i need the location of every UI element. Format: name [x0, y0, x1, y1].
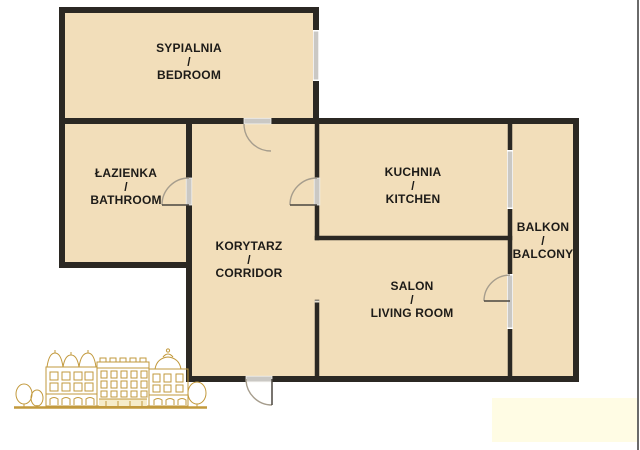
- room-label-balcony: BALKON / BALCONY: [513, 221, 574, 262]
- kitchen-balcony-window: [507, 150, 513, 209]
- watermark-block: [492, 398, 638, 442]
- room-label-bathroom: ŁAZIENKA / BATHROOM: [90, 167, 161, 208]
- building-windows: [101, 371, 147, 397]
- room-name-separator: /: [385, 179, 442, 193]
- room-name-en: LIVING ROOM: [371, 307, 454, 321]
- room-name-en: BALCONY: [513, 248, 574, 262]
- room-name-en: CORRIDOR: [216, 267, 283, 281]
- room-name-pl: KUCHNIA: [385, 166, 442, 180]
- room-name-pl: BALKON: [513, 221, 574, 235]
- room-name-separator: /: [371, 293, 454, 307]
- building-illustration-icon: [14, 349, 207, 408]
- room-name-separator: /: [156, 55, 222, 69]
- room-name-separator: /: [513, 234, 574, 248]
- room-name-en: BEDROOM: [156, 69, 222, 83]
- room-label-kitchen: KUCHNIA / KITCHEN: [385, 166, 442, 207]
- room-name-pl: SALON: [371, 280, 454, 294]
- room-label-corridor: KORYTARZ / CORRIDOR: [216, 240, 283, 281]
- room-name-pl: KORYTARZ: [216, 240, 283, 254]
- room-name-en: KITCHEN: [385, 193, 442, 207]
- room-name-pl: SYPIALNIA: [156, 42, 222, 56]
- room-name-separator: /: [216, 253, 283, 267]
- room-name-separator: /: [90, 180, 161, 194]
- tree-icon: [31, 390, 43, 406]
- entrance-door-arc: [246, 379, 272, 405]
- room-label-living-room: SALON / LIVING ROOM: [371, 280, 454, 321]
- bedroom-window: [313, 30, 319, 81]
- tree-icon: [188, 382, 206, 404]
- room-name-pl: ŁAZIENKA: [90, 167, 161, 181]
- room-name-en: BATHROOM: [90, 194, 161, 208]
- room-label-bedroom: SYPIALNIA / BEDROOM: [156, 42, 222, 83]
- passage-end-cap: [315, 301, 320, 303]
- entrance-door: [246, 376, 272, 405]
- building-windows: [50, 372, 93, 391]
- tree-icon: [16, 384, 32, 404]
- image-right-border: [637, 0, 639, 450]
- floor-plan-page: SYPIALNIA / BEDROOM ŁAZIENKA / BATHROOM …: [0, 0, 640, 450]
- building-windows: [153, 374, 183, 392]
